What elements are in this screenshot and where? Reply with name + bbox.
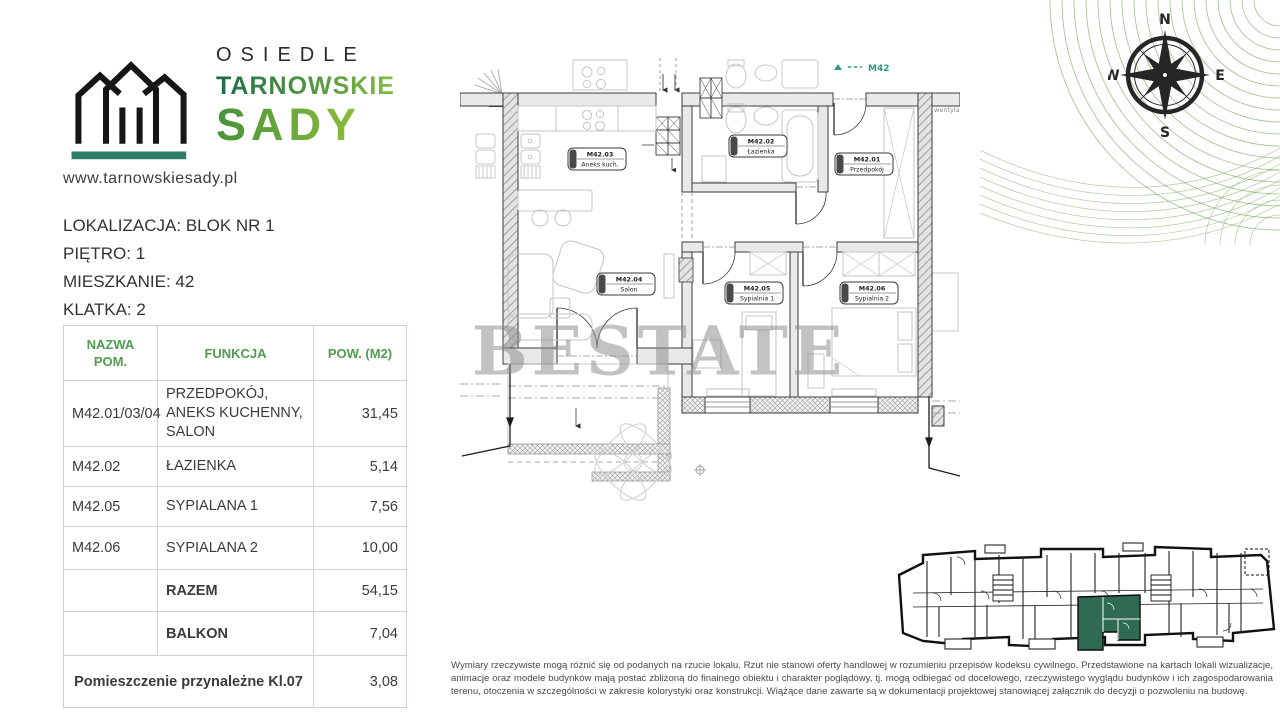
room-label: M42.06 Sypialnia 2 [840,282,898,304]
room-name-cell: M42.05 [64,487,158,527]
svg-text:M42.01: M42.01 [854,156,881,164]
svg-text:Łazienka: Łazienka [746,149,774,156]
room-area-table: NAZWA POM. FUNKCJA POW. (M2) M42.01/03/0… [63,325,407,708]
floor-plan: wentylac M42 M42.03 Aneks kuch. M42.02 Ł… [460,58,960,533]
header-room-name: NAZWA POM. [64,326,158,381]
disclaimer-text: Wymiary rzeczywiste mogą różnić się od p… [451,659,1273,698]
room-function-cell: PRZEDPOKÓJ, ANEKS KUCHENNY, SALON [158,381,314,447]
svg-text:M42.02: M42.02 [748,138,775,146]
ventilation-label: wentylac [934,106,960,114]
room-labels: M42.03 Aneks kuch. M42.02 Łazienka M42.0… [568,135,898,304]
unit-tag: M42 [834,64,889,74]
compass-south-label: S [1160,125,1170,141]
room-name-cell: M42.02 [64,447,158,487]
header-function: FUNKCJA [158,326,314,381]
room-label: M42.03 Aneks kuch. [568,148,626,170]
room-area-cell: 31,45 [314,381,407,447]
brand-line-tarnowskie: TARNOWSKIE [216,72,416,101]
total-label: RAZEM [158,570,314,612]
room-name-cell: M42.06 [64,527,158,570]
table-row: M42.06 SYPIALANA 2 10,00 [64,527,407,570]
table-row: M42.05 SYPIALANA 1 7,56 [64,487,407,527]
website-link[interactable]: www.tarnowskiesady.pl [63,170,238,188]
room-label: M42.05 Sypialnia 1 [725,282,783,304]
svg-text:M42.05: M42.05 [744,285,771,293]
brand-line-sady: SADY [216,99,416,151]
empty-cell [64,570,158,612]
header-area: POW. (M2) [314,326,407,381]
location-apartment: MIESZKANIE: 42 [63,268,275,296]
compass-rose: N E S W [1108,8,1228,143]
location-floor: PIĘTRO: 1 [63,240,275,268]
room-name-cell: M42.01/03/04 [64,381,158,447]
svg-text:Sypialnia 1: Sypialnia 1 [740,296,774,303]
table-row: M42.01/03/04 PRZEDPOKÓJ, ANEKS KUCHENNY,… [64,381,407,447]
stair-sunburst [475,69,502,94]
svg-text:Salon: Salon [620,287,637,294]
brand-logo-houses [60,42,202,167]
compass-north-label: N [1159,12,1171,28]
balcony-value: 7,04 [314,612,407,656]
room-function-cell: ŁAZIENKA [158,447,314,487]
empty-cell [64,612,158,656]
room-function-cell: SYPIALANA 1 [158,487,314,527]
svg-text:Sypialnia 2: Sypialnia 2 [855,296,889,303]
room-label: M42.01 Przedpokój [835,153,893,175]
logo-underline-bar [72,151,187,159]
location-staircase: KLATKA: 2 [63,296,275,324]
room-area-cell: 10,00 [314,527,407,570]
table-total-row: RAZEM 54,15 [64,570,407,612]
room-area-cell: 5,14 [314,447,407,487]
room-area-cell: 7,56 [314,487,407,527]
svg-text:M42: M42 [868,64,889,74]
brand-line-osiedle: OSIEDLE [216,44,416,67]
building-overview-plan [893,537,1280,655]
svg-text:M42.03: M42.03 [587,151,614,159]
wall-pillar [679,258,693,282]
room-function-cell: SYPIALANA 2 [158,527,314,570]
table-header-row: NAZWA POM. FUNKCJA POW. (M2) [64,326,407,381]
location-info: LOKALIZACJA: BLOK NR 1 PIĘTRO: 1 MIESZKA… [63,212,275,324]
svg-text:M42.04: M42.04 [616,276,643,284]
room-label: M42.02 Łazienka [729,135,787,157]
total-value: 54,15 [314,570,407,612]
watermark: BESTATE [472,311,832,391]
svg-text:Aneks kuch.: Aneks kuch. [581,162,618,169]
bedroom-south-wall [682,389,918,413]
svg-text:M42.06: M42.06 [859,285,886,293]
brand-wordmark: OSIEDLE TARNOWSKIE SADY [216,44,416,151]
table-footer-row: Pomieszczenie przynależne Kl.07 3,08 [64,656,407,708]
compass-west-label: W [1108,68,1120,84]
auxiliary-room-value: 3,08 [314,656,407,708]
balcony-label: BALKON [158,612,314,656]
auxiliary-room-label: Pomieszczenie przynależne Kl.07 [64,656,314,708]
svg-text:Przedpokój: Przedpokój [850,166,884,174]
location-block: LOKALIZACJA: BLOK NR 1 [63,212,275,240]
table-row: M42.02 ŁAZIENKA 5,14 [64,447,407,487]
room-label: M42.04 Salon [597,273,655,295]
compass-east-label: E [1215,68,1225,84]
table-balcony-row: BALKON 7,04 [64,612,407,656]
